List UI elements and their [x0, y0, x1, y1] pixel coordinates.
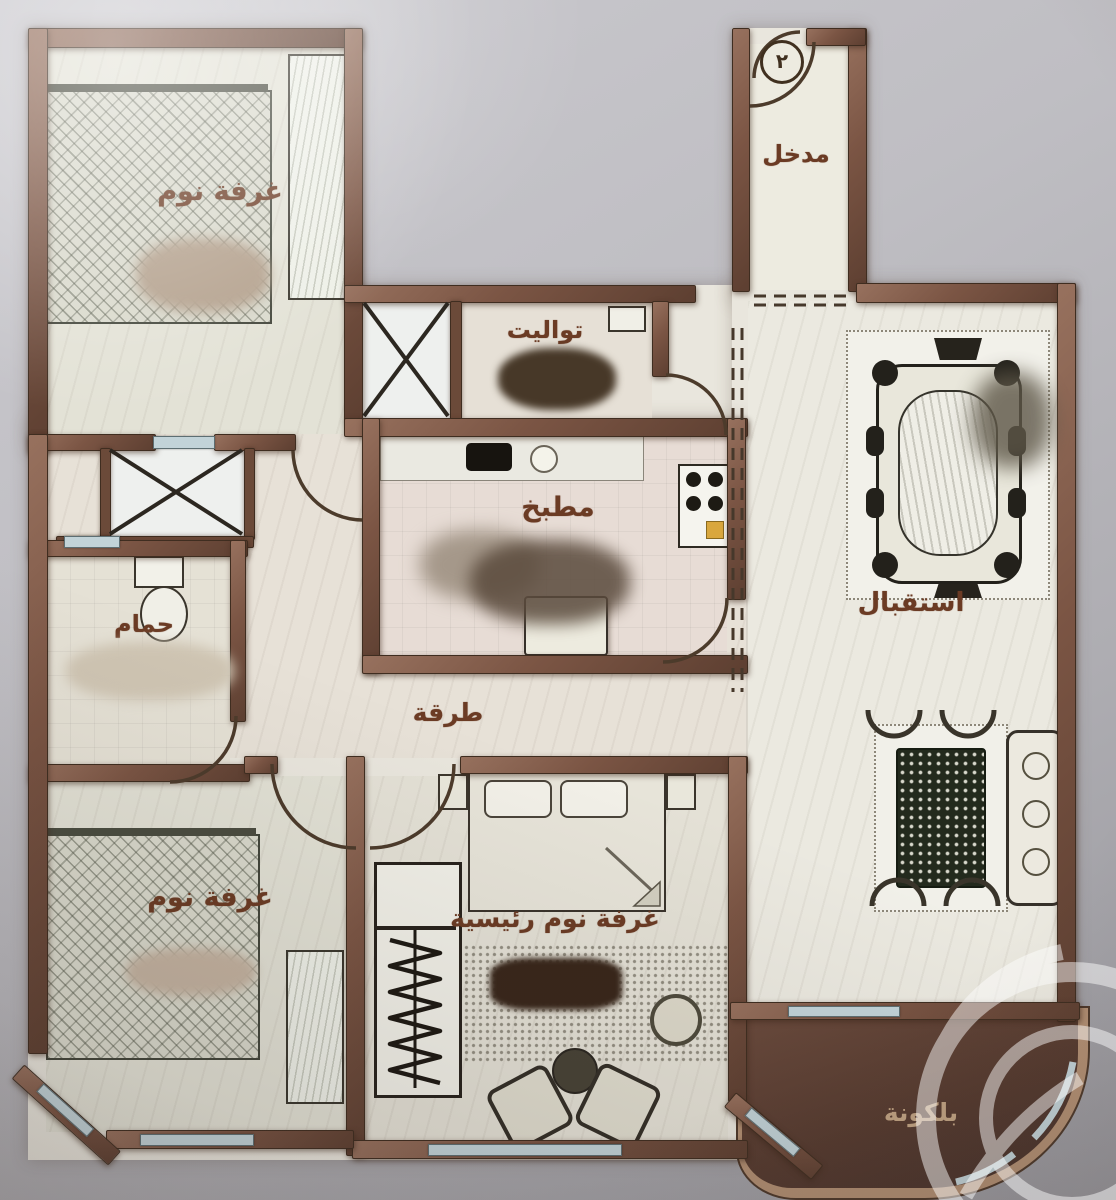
blur-patch [66, 642, 234, 700]
wall [214, 434, 296, 451]
shaft-wall [100, 448, 111, 540]
blur-patch [126, 948, 256, 996]
room-label-bedroom-top: غرفة نوم [120, 176, 320, 207]
wall [28, 28, 362, 48]
burner [708, 496, 723, 511]
window [64, 536, 120, 548]
hanger-wardrobe [374, 862, 462, 1098]
ottoman [650, 994, 702, 1046]
unit-number-badge: ٢ [760, 40, 804, 84]
sofa-cushion [1022, 848, 1050, 876]
stove-accent [706, 521, 724, 539]
room-label-kitchen: مطبخ [488, 492, 628, 523]
wall [362, 655, 748, 674]
bed-headboard [46, 828, 256, 836]
wall [652, 301, 669, 377]
kitchen-sink [466, 443, 512, 471]
room-label-toilet: تواليت [470, 316, 620, 344]
shaft-wall [244, 448, 255, 540]
wall [28, 28, 48, 454]
sofa-cushion [1022, 800, 1050, 828]
table-ornament [872, 552, 898, 578]
wall [728, 756, 747, 1102]
table-ornament [872, 360, 898, 386]
burner [686, 472, 701, 487]
nightstand [438, 774, 468, 810]
wall [28, 434, 48, 1054]
burner [708, 472, 723, 487]
sofa-cushion [1022, 752, 1050, 780]
wall [727, 418, 746, 600]
table-ornament [994, 552, 1020, 578]
nightstand [666, 774, 696, 810]
blur-patch [972, 372, 1052, 468]
wall [344, 418, 748, 437]
bed-headboard [46, 84, 268, 92]
pillow [484, 780, 552, 818]
wall [730, 1002, 1080, 1020]
room-label-hallway: طرقة [388, 698, 508, 727]
burner [686, 496, 701, 511]
room-label-bathroom: حمام [84, 610, 204, 638]
window [428, 1144, 622, 1156]
bed-bottom [46, 834, 260, 1060]
pillow [560, 780, 628, 818]
wall [848, 28, 867, 292]
blur-patch [498, 348, 616, 410]
room-label-master-bedroom: غرفة نوم رئيسية [440, 904, 670, 933]
window [140, 1134, 254, 1146]
blur-patch [136, 238, 270, 312]
kitchen-basin [530, 445, 558, 473]
window [788, 1006, 900, 1017]
table-ornament [866, 426, 884, 456]
wall [346, 756, 365, 1156]
kitchen-counter [380, 435, 644, 481]
floor-plan-photo: غرفة نوم مدخل تواليت مطبخ حمام طرقة استق… [0, 0, 1116, 1200]
seating-rug-ornament [896, 748, 986, 888]
wall [28, 764, 250, 782]
shaft-left-floor [109, 448, 244, 536]
wall [344, 28, 363, 422]
shaft-top-floor [362, 301, 450, 418]
shaft-wall [450, 301, 462, 420]
wall [1057, 283, 1076, 1022]
room-label-reception: استقبال [836, 588, 986, 618]
room-label-bedroom-bottom: غرفة نوم [110, 882, 310, 913]
room-label-balcony: بلكونة [846, 1098, 996, 1127]
dining-chair [934, 338, 982, 360]
wardrobe-bottom [286, 950, 344, 1104]
table-ornament [866, 488, 884, 518]
wall [856, 283, 1076, 303]
wall [28, 540, 248, 557]
wall [344, 285, 696, 303]
wall [460, 756, 748, 774]
blur-patch [470, 540, 630, 624]
wall [230, 540, 246, 722]
wc-tank [134, 556, 184, 588]
table-ornament [1008, 488, 1026, 518]
wall [806, 28, 866, 46]
wall [362, 418, 380, 673]
window [153, 436, 215, 449]
wall [244, 756, 278, 774]
blur-patch [490, 958, 622, 1010]
room-label-entrance: مدخل [744, 140, 848, 168]
